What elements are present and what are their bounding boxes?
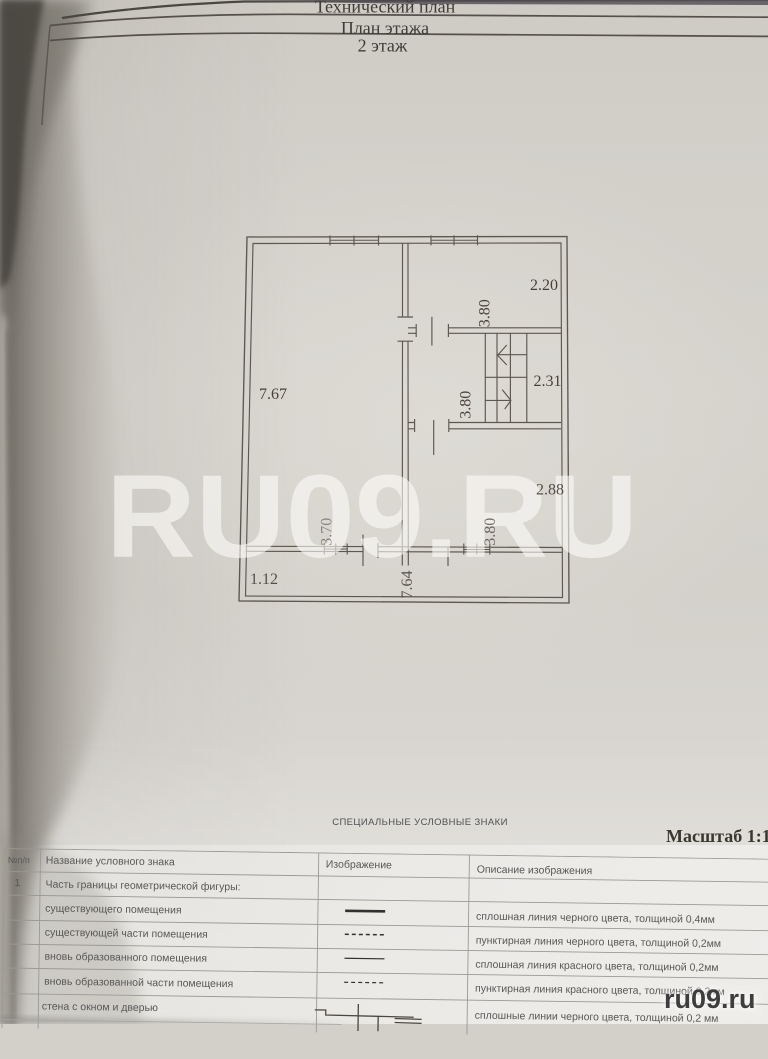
svg-text:3.80: 3.80 [476, 299, 493, 327]
svg-text:2.31: 2.31 [534, 373, 562, 390]
svg-text:2.88: 2.88 [536, 482, 564, 499]
svg-text:3.80: 3.80 [458, 391, 475, 419]
svg-text:7.67: 7.67 [259, 386, 287, 403]
svg-text:3.70: 3.70 [319, 518, 336, 546]
svg-text:7.64: 7.64 [399, 571, 416, 599]
svg-text:2 этаж: 2 этаж [358, 36, 408, 56]
svg-text:2.20: 2.20 [530, 277, 558, 294]
svg-text:1.12: 1.12 [250, 571, 278, 588]
svg-text:Технический план: Технический план [315, 0, 456, 17]
svg-text:3.80: 3.80 [482, 518, 499, 546]
